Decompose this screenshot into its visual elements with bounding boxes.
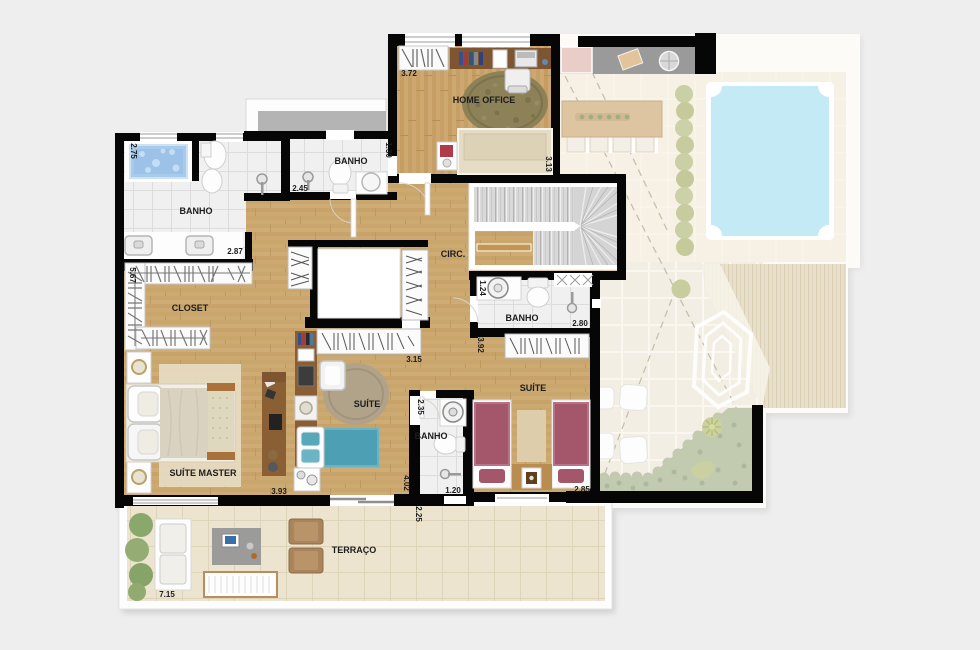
svg-text:1.30: 1.30 bbox=[384, 142, 393, 158]
svg-text:2.45: 2.45 bbox=[292, 184, 308, 193]
svg-text:4.02: 4.02 bbox=[402, 475, 411, 491]
svg-text:3.72: 3.72 bbox=[401, 69, 417, 78]
svg-text:SUÍTE: SUÍTE bbox=[354, 399, 381, 409]
svg-text:2.75: 2.75 bbox=[129, 143, 138, 159]
svg-text:BANHO: BANHO bbox=[506, 313, 539, 323]
svg-text:7.15: 7.15 bbox=[159, 590, 175, 599]
svg-text:3.92: 3.92 bbox=[476, 337, 485, 353]
svg-text:3.93: 3.93 bbox=[271, 487, 287, 496]
svg-text:2.80: 2.80 bbox=[572, 319, 588, 328]
svg-text:2.87: 2.87 bbox=[227, 247, 243, 256]
svg-text:2.35: 2.35 bbox=[416, 399, 425, 415]
svg-text:BANHO: BANHO bbox=[180, 206, 213, 216]
svg-text:HOME OFFICE: HOME OFFICE bbox=[453, 95, 516, 105]
svg-text:BANHO: BANHO bbox=[335, 156, 368, 166]
svg-text:5.67: 5.67 bbox=[128, 267, 137, 283]
svg-text:3.13: 3.13 bbox=[544, 156, 553, 172]
svg-text:3.15: 3.15 bbox=[406, 355, 422, 364]
svg-text:2.25: 2.25 bbox=[414, 506, 423, 522]
svg-text:2.85: 2.85 bbox=[574, 485, 590, 494]
svg-text:SUÍTE MASTER: SUÍTE MASTER bbox=[169, 468, 237, 478]
svg-text:CLOSET: CLOSET bbox=[172, 303, 209, 313]
svg-text:1.24: 1.24 bbox=[478, 280, 487, 296]
svg-text:TERRAÇO: TERRAÇO bbox=[332, 545, 377, 555]
svg-text:BANHO: BANHO bbox=[415, 431, 448, 441]
svg-text:SUÍTE: SUÍTE bbox=[520, 383, 547, 393]
svg-text:CIRC.: CIRC. bbox=[441, 249, 466, 259]
svg-text:1.20: 1.20 bbox=[445, 486, 461, 495]
